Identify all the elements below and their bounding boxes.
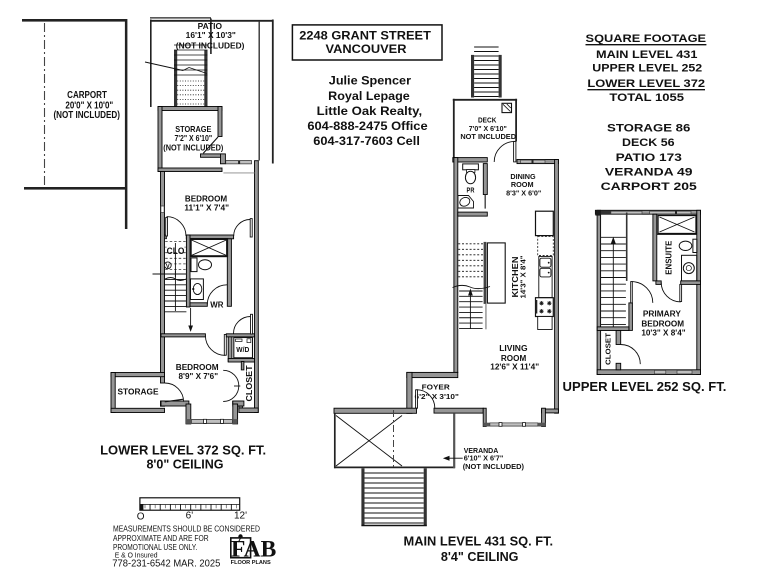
svg-text:6': 6' (186, 511, 194, 522)
svg-text:778-231-6542 MAR. 2025: 778-231-6542 MAR. 2025 (112, 559, 220, 570)
svg-text:(NOT INCLUDED): (NOT INCLUDED) (163, 144, 223, 153)
svg-text:8'3" X 6'0": 8'3" X 6'0" (506, 190, 541, 198)
svg-text:PATIO 173: PATIO 173 (616, 152, 682, 164)
svg-text:Royal Lepage: Royal Lepage (328, 89, 410, 103)
svg-text:LIVING: LIVING (499, 344, 527, 353)
svg-text:12': 12' (234, 511, 247, 522)
svg-text:6'10" X 6'7": 6'10" X 6'7" (464, 453, 504, 462)
svg-text:TOTAL 1055: TOTAL 1055 (609, 92, 684, 104)
svg-text:FLOOR PLANS: FLOOR PLANS (231, 560, 272, 566)
svg-text:CARPORT 205: CARPORT 205 (601, 181, 698, 193)
svg-text:STORAGE: STORAGE (118, 386, 159, 396)
svg-text:2248 GRANT STREET: 2248 GRANT STREET (299, 29, 431, 43)
svg-text:(NOT INCLUDED): (NOT INCLUDED) (176, 41, 245, 51)
svg-text:W/D: W/D (236, 345, 250, 354)
svg-text:O: O (137, 512, 145, 523)
svg-text:10'3" X 8'4": 10'3" X 8'4" (641, 329, 686, 338)
svg-text:12'6" X 11'4": 12'6" X 11'4" (490, 363, 539, 372)
svg-text:604-317-7603 Cell: 604-317-7603 Cell (313, 134, 420, 148)
svg-text:BEDROOM: BEDROOM (641, 320, 684, 329)
svg-text:FAB: FAB (231, 537, 277, 563)
svg-text:DECK 56: DECK 56 (622, 137, 675, 149)
svg-text:16'1" X 10'3": 16'1" X 10'3" (186, 30, 236, 40)
svg-text:SQUARE FOOTAGE: SQUARE FOOTAGE (586, 33, 707, 45)
svg-text:VERANDA 49: VERANDA 49 (605, 166, 693, 178)
svg-text:ROOM: ROOM (511, 181, 534, 189)
svg-text:604-888-2475 Office: 604-888-2475 Office (307, 119, 428, 133)
svg-text:14'3" X 8'4": 14'3" X 8'4" (519, 255, 528, 298)
svg-text:UPPER LEVEL 252: UPPER LEVEL 252 (592, 63, 702, 75)
svg-text:WR: WR (210, 301, 223, 310)
svg-text:LOWER LEVEL 372: LOWER LEVEL 372 (587, 78, 705, 90)
svg-text:V: V (166, 264, 170, 270)
svg-text:STORAGE 86: STORAGE 86 (607, 122, 690, 134)
svg-text:Little Oak Realty,: Little Oak Realty, (317, 104, 423, 118)
svg-text:(NOT INCLUDED): (NOT INCLUDED) (53, 110, 120, 121)
svg-text:DINING: DINING (510, 173, 536, 181)
svg-text:LOWER LEVEL 372 SQ. FT.: LOWER LEVEL 372 SQ. FT. (100, 443, 266, 457)
svg-text:UPPER LEVEL 252 SQ. FT.: UPPER LEVEL 252 SQ. FT. (563, 380, 727, 394)
svg-text:6'2" X 3'10": 6'2" X 3'10" (415, 392, 460, 401)
svg-text:PR: PR (467, 185, 475, 194)
svg-text:MAIN LEVEL 431: MAIN LEVEL 431 (596, 49, 698, 61)
svg-text:FOYER: FOYER (422, 383, 451, 392)
svg-text:8'4" CEILING: 8'4" CEILING (441, 550, 519, 564)
svg-text:ENSUITE: ENSUITE (664, 240, 673, 275)
svg-text:CLOSET: CLOSET (604, 333, 613, 365)
svg-text:STORAGE: STORAGE (175, 125, 212, 134)
svg-text:11'1" X 7'4": 11'1" X 7'4" (184, 202, 229, 212)
svg-text:(NOT INCLUDED): (NOT INCLUDED) (463, 462, 525, 471)
svg-text:NOT INCLUDED: NOT INCLUDED (460, 132, 516, 141)
svg-text:VANCOUVER: VANCOUVER (326, 42, 407, 56)
svg-text:8'0" CEILING: 8'0" CEILING (146, 457, 223, 471)
svg-text:MAIN LEVEL 431 SQ. FT.: MAIN LEVEL 431 SQ. FT. (404, 534, 554, 548)
svg-text:Julie Spencer: Julie Spencer (329, 74, 411, 88)
svg-text:7'2" X 6'10": 7'2" X 6'10" (175, 134, 213, 143)
svg-text:CLOSET: CLOSET (245, 365, 254, 401)
svg-text:8'9" X 7'6": 8'9" X 7'6" (179, 371, 219, 381)
svg-text:PRIMARY: PRIMARY (643, 310, 682, 319)
